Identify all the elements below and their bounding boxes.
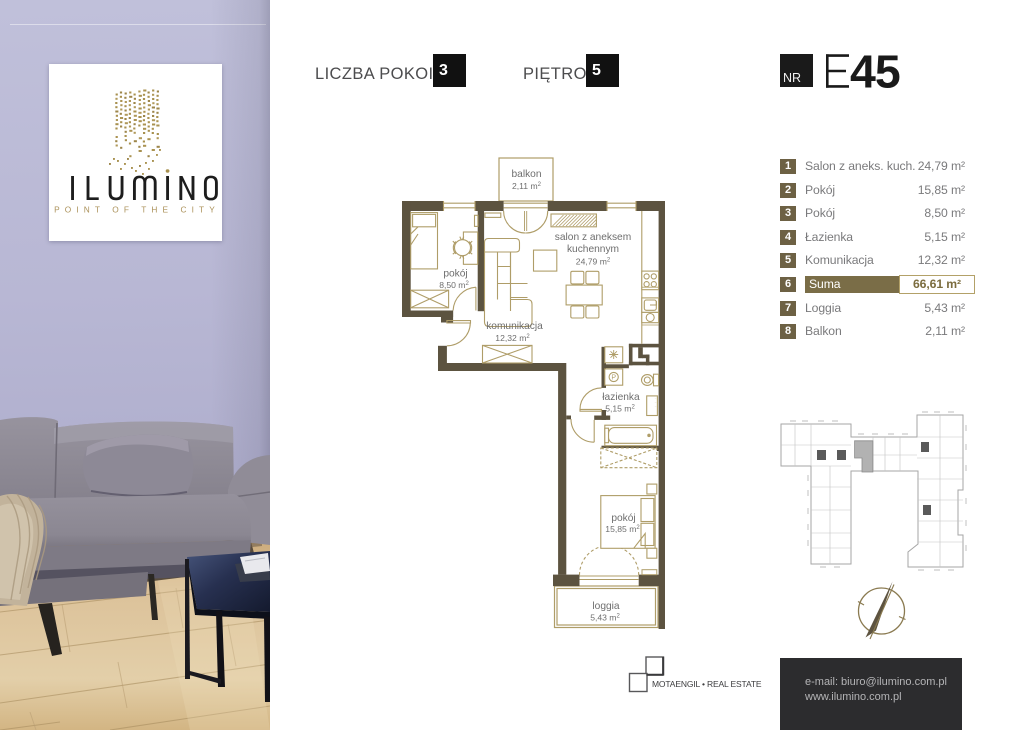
svg-text:5,15 m2: 5,15 m2 (605, 404, 635, 414)
svg-text:pokój: pokój (611, 513, 635, 524)
svg-text:łazienka: łazienka (602, 392, 640, 403)
svg-text:24,79 m2: 24,79 m2 (576, 257, 611, 267)
svg-text:loggia: loggia (592, 601, 620, 612)
svg-text:8,50 m2: 8,50 m2 (439, 280, 469, 290)
svg-text:2,11 m2: 2,11 m2 (512, 181, 542, 191)
svg-text:P: P (611, 375, 616, 382)
svg-text:POINT OF THE CITY: POINT OF THE CITY (54, 205, 220, 215)
svg-text:pokój: pokój (443, 269, 467, 280)
svg-text:5,43 m2: 5,43 m2 (590, 613, 620, 623)
svg-text:komunikacja: komunikacja (486, 321, 543, 332)
svg-text:15,85 m2: 15,85 m2 (605, 524, 640, 534)
svg-text:balkon: balkon (511, 169, 541, 180)
svg-text:12,32 m2: 12,32 m2 (495, 333, 530, 343)
svg-text:45: 45 (850, 52, 900, 92)
svg-text:salon z aneksem: salon z aneksem (555, 232, 631, 243)
svg-text:kuchennym: kuchennym (567, 244, 619, 255)
